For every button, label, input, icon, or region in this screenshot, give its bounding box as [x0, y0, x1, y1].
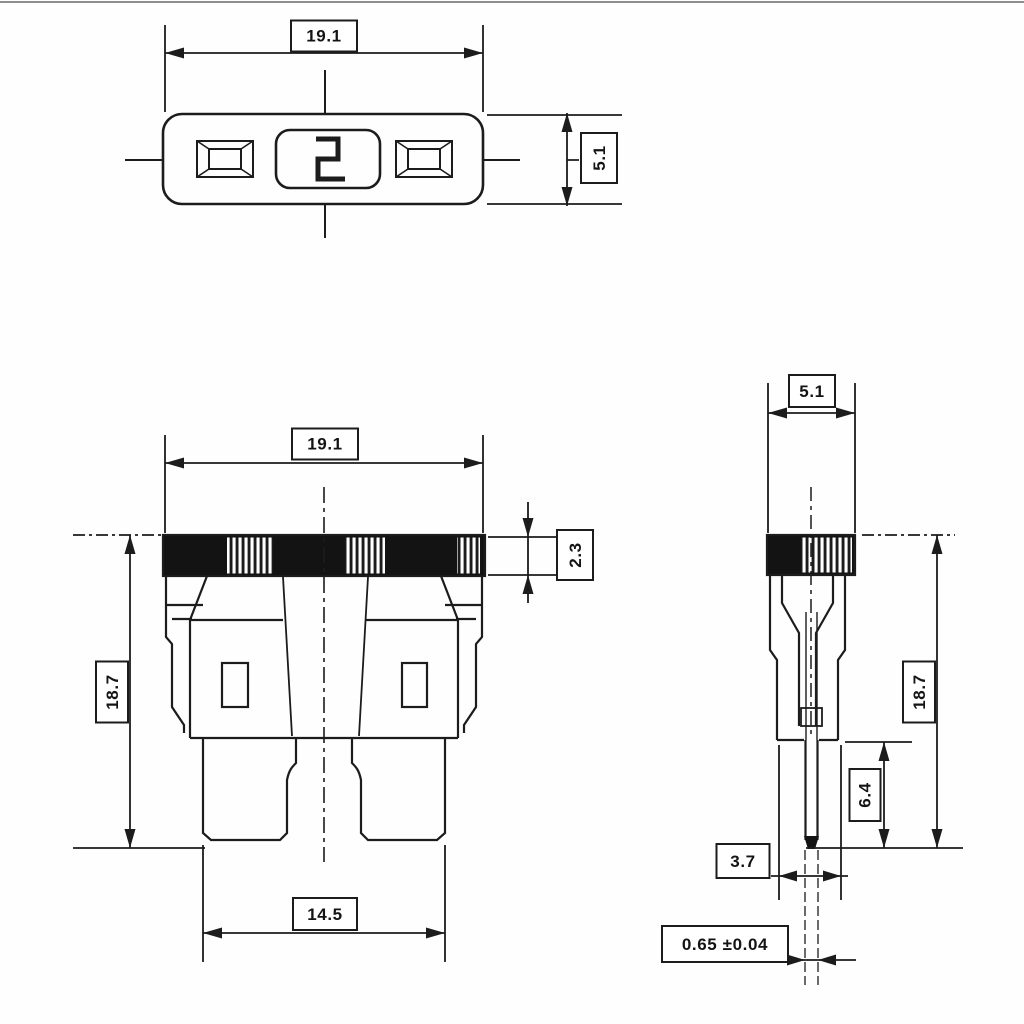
dim-label-side-body-depth: 3.7 — [716, 843, 771, 879]
drawing-sheet: 19.1 5.1 19.1 18.7 2.3 14.5 5.1 18.7 6.4… — [0, 0, 1024, 1024]
front-right-blade — [352, 739, 445, 840]
dim-label-side-height: 18.7 — [902, 661, 936, 724]
dim-label-front-height: 18.7 — [95, 661, 129, 724]
front-left-blade — [203, 739, 296, 840]
dim-label-front-terminal-span: 14.5 — [292, 897, 358, 931]
front-left-window — [222, 663, 248, 707]
dim-label-front-width: 19.1 — [291, 428, 359, 461]
front-right-window — [402, 663, 427, 707]
side-blade — [804, 740, 819, 985]
dim-label-side-terminal-thickness: 0.65 ±0.04 — [661, 925, 789, 963]
dim-label-side-terminal-length: 6.4 — [849, 768, 882, 822]
front-height-dimension — [73, 535, 205, 848]
dim-label-front-cap-height: 2.3 — [556, 529, 594, 581]
side-depth-dimension — [771, 745, 848, 900]
dim-label-top-width: 19.1 — [290, 20, 358, 53]
fuse-element-lines — [283, 577, 368, 736]
front-view — [73, 435, 556, 962]
side-housing-outline — [770, 575, 845, 740]
front-cap-dimension — [488, 502, 556, 603]
dim-label-side-width: 5.1 — [788, 374, 836, 408]
technical-drawing-canvas — [0, 0, 1024, 1024]
dim-label-top-height: 5.1 — [580, 132, 618, 184]
top-view — [125, 25, 622, 238]
side-blade-thickness-dimension — [787, 955, 856, 966]
